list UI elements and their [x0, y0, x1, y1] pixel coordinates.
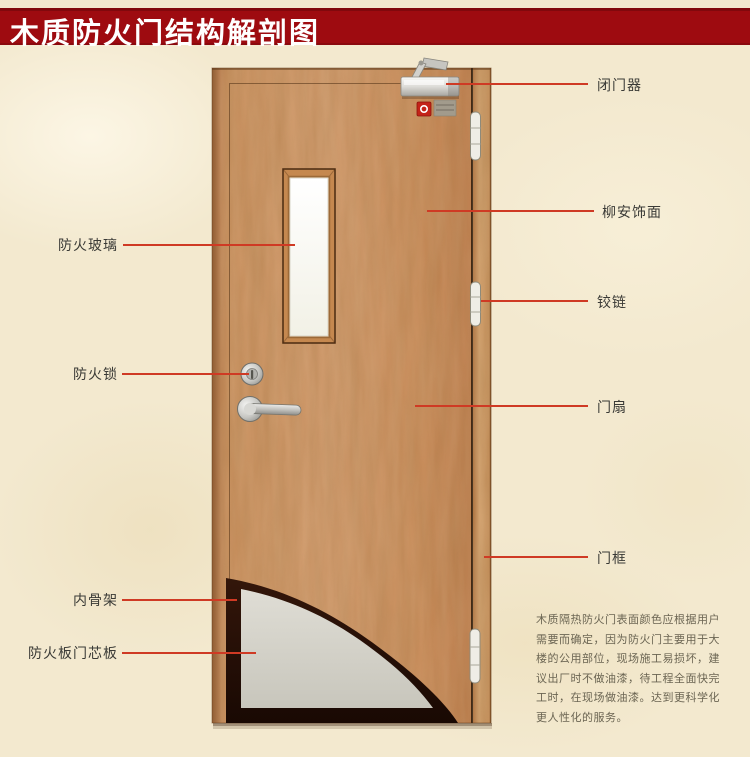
hinge-middle	[471, 282, 481, 326]
hinge-top	[471, 112, 481, 160]
label-door-closer: 闭门器	[597, 76, 642, 94]
description-line: 更人性化的服务。	[536, 709, 721, 729]
description-panel: 木质隔热防火门表面颜色应根据用户 需要而确定，因为防火门主要用于大 楼的公用部位…	[536, 611, 721, 728]
door-frame-seam	[471, 68, 473, 723]
description-line: 木质隔热防火门表面颜色应根据用户	[536, 611, 721, 631]
label-hinge: 铰链	[597, 293, 627, 311]
sign-plate	[434, 100, 456, 116]
label-fire-board-core: 防火板门芯板	[18, 644, 118, 662]
label-inner-skeleton: 内骨架	[18, 591, 118, 609]
label-door-leaf: 门扇	[597, 398, 627, 416]
callout-line-door-closer	[446, 83, 588, 85]
label-fire-lock: 防火锁	[18, 365, 118, 383]
callout-line-hinge	[481, 300, 588, 302]
callout-line-lauan-veneer	[427, 210, 594, 212]
callout-line-inner-skeleton	[122, 599, 237, 601]
description-line: 楼的公用部位，现场施工易损坏，建	[536, 650, 721, 670]
callout-line-door-leaf	[415, 405, 588, 407]
title-banner: 木质防火门结构解剖图	[0, 8, 750, 45]
label-lauan-veneer: 柳安饰面	[602, 203, 662, 221]
description-line: 需要而确定，因为防火门主要用于大	[536, 631, 721, 651]
label-door-frame: 门框	[597, 549, 627, 567]
fire-alarm-indicator	[417, 102, 431, 116]
label-fire-glass: 防火玻璃	[18, 236, 118, 254]
door-closer-device	[401, 58, 459, 99]
callout-line-fire-glass	[123, 244, 295, 246]
door-shadow-edge	[213, 723, 492, 726]
page-title: 木质防火门结构解剖图	[10, 10, 320, 52]
door-window	[283, 169, 335, 343]
fire-glass-pane	[290, 178, 328, 336]
callout-line-door-frame	[484, 556, 588, 558]
door-left-edge	[212, 68, 221, 723]
hinge-bottom	[470, 629, 480, 683]
description-line: 议出厂时不做油漆，待工程全面快完	[536, 670, 721, 690]
callout-line-fire-board-core	[122, 652, 256, 654]
description-line: 工时，在现场做油漆。达到更科学化	[536, 689, 721, 709]
callout-line-fire-lock	[122, 373, 249, 375]
